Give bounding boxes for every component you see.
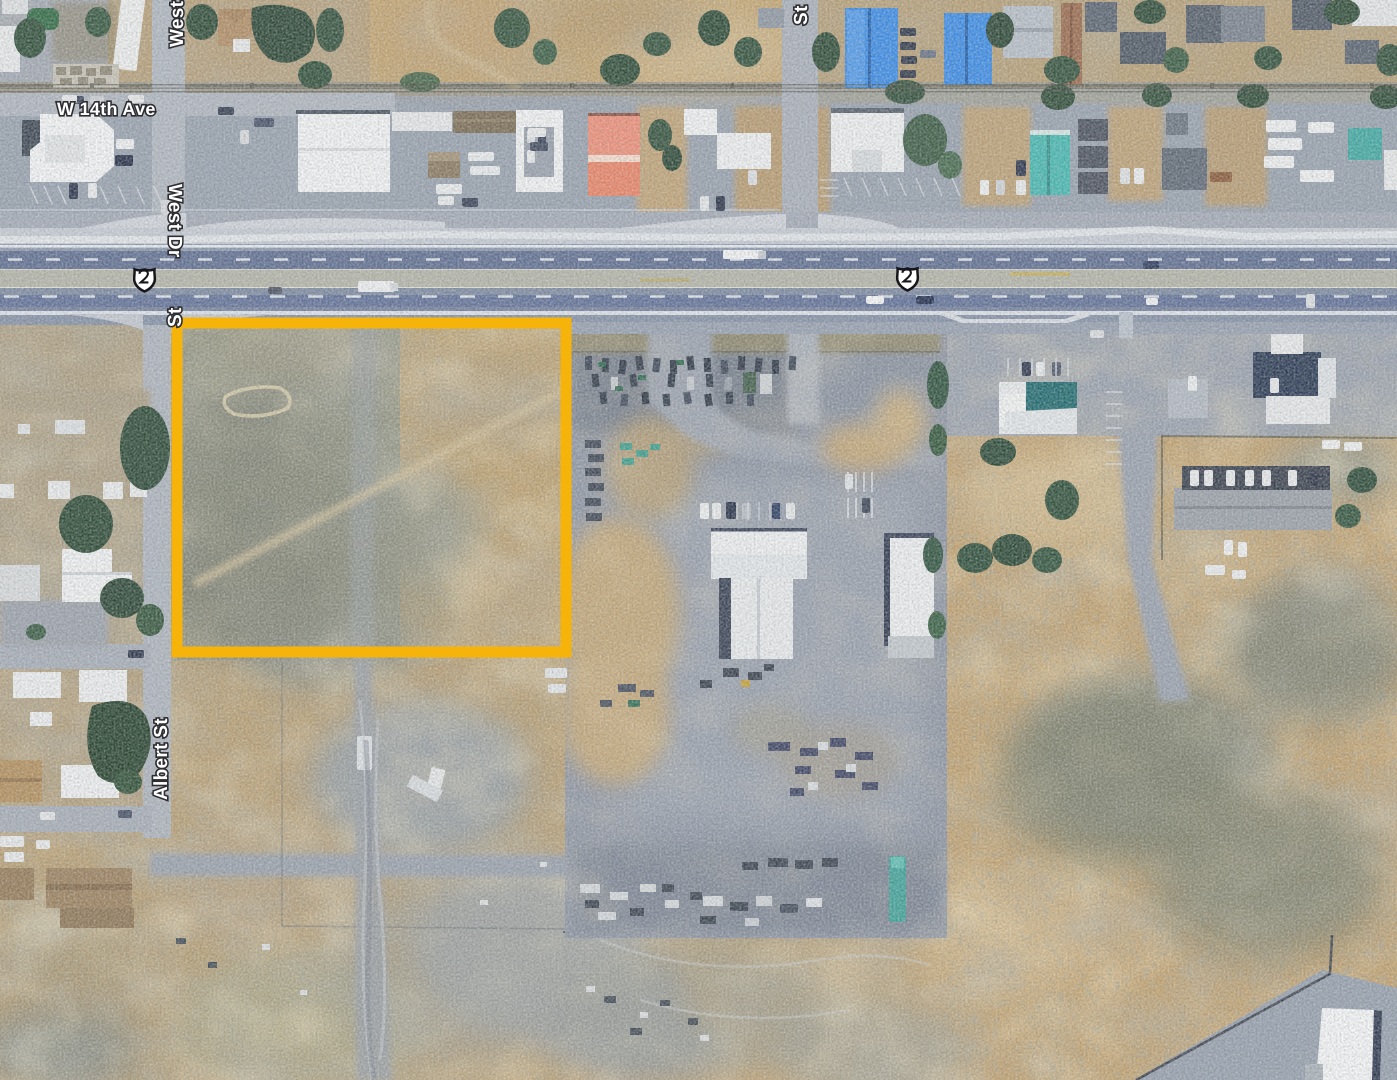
svg-text:West Dr: West Dr xyxy=(164,184,185,258)
svg-text:Albert St: Albert St xyxy=(151,718,172,800)
svg-text:W 14th Ave: W 14th Ave xyxy=(57,99,156,119)
svg-text:St: St xyxy=(791,5,812,25)
svg-text:St: St xyxy=(165,307,186,327)
svg-text:West: West xyxy=(167,0,188,47)
